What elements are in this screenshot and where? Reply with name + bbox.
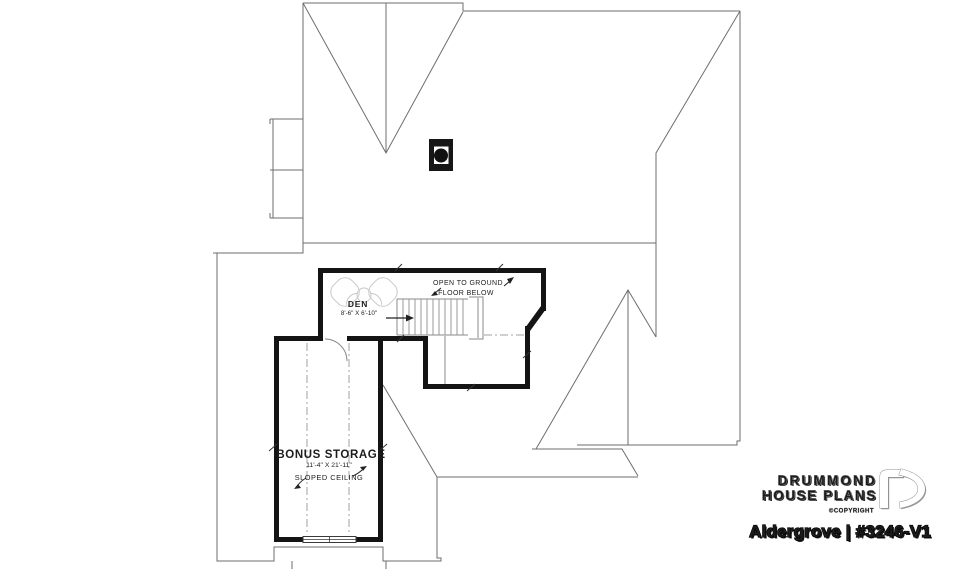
chimney-chase-outline [270,119,303,218]
plan-labels: OPEN TO GROUND FLOOR BELOW DEN 8'-6" X 6… [276,280,503,482]
den-room-label: DEN [348,299,368,309]
chimney-icon [429,139,453,171]
bonus-top-wall [274,336,320,341]
brand-logo: DRUMMOND HOUSE PLANS DRUMMOND HOUSE PLAN… [762,469,926,515]
lower-roof-band [437,449,638,477]
den-bottom-wall [347,336,428,341]
open-below-label-line1: OPEN TO GROUND [433,280,503,287]
den-left-wall [318,268,323,341]
floorplan-page: OPEN TO GROUND FLOOR BELOW DEN 8'-6" X 6… [0,0,960,569]
stair-left-lower-wall [423,336,428,389]
stair-direction-arrow [386,315,414,322]
sloped-ceiling-lines [307,343,349,535]
stair-treads [403,299,463,335]
stair-right-lower-wall [525,326,530,389]
leader-arrowhead [294,484,301,489]
den-door-arc [325,339,347,361]
roof-top-edges [303,3,740,11]
front-gable-valley [303,3,463,153]
bonus-left-wall [274,336,279,542]
plan-title: Aldergrove | #3246-V1 [749,522,931,541]
bonus-room-label: BONUS STORAGE [276,449,385,461]
side-gable [536,290,656,449]
stair-landing [469,297,483,339]
floor-plan-canvas: OPEN TO GROUND FLOOR BELOW DEN 8'-6" X 6… [0,0,960,569]
arrow-head-icon [406,315,414,322]
den-dimensions: 8'-6" X 6'-10" [341,310,377,317]
bonus-window [303,537,356,543]
chimney-flue [434,149,448,163]
brand-name-line2: HOUSE PLANS [762,488,877,503]
open-below-label-line2: FLOOR BELOW [438,290,494,297]
brand-name-line1: DRUMMOND [778,473,877,488]
brand-d-mark-icon [899,469,925,508]
plan-title-block: Aldergrove | #3246-V1 Aldergrove | #3246… [749,522,932,543]
bonus-dimensions: 11'-4" X 21'-11" [306,462,352,469]
stair-right-upper-wall [541,268,546,311]
right-wing-outline [577,11,740,445]
below-eave-stubs [292,561,386,569]
walls [274,268,546,542]
sloped-ceiling-label: SLOPED CEILING [295,473,364,482]
bonus-right-wall [378,336,383,542]
copyright-label: ©COPYRIGHT [829,508,874,515]
den-top-wall [318,268,546,273]
stair-bottom-wall [423,384,530,389]
upper-block-outline [213,3,656,253]
